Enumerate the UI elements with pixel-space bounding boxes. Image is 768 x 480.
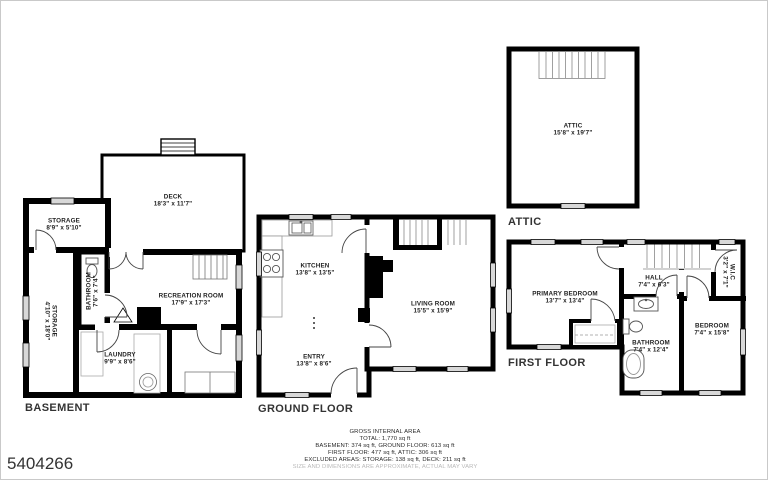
room-label-entry: ENTRY 13'8" x 8'6": [296, 354, 331, 369]
room-label-attic: ATTIC 15'8" x 19'7": [554, 123, 593, 138]
first-attic-areas: FIRST FLOOR: 477 sq ft, ATTIC: 306 sq ft: [235, 450, 535, 457]
basement-stairs: [193, 255, 227, 279]
bathroom-sink-icon: [634, 297, 658, 311]
basement-duct-wall: [137, 307, 161, 329]
washing-machine-icon: [134, 334, 160, 393]
room-label-recreation: RECREATION ROOM 17'9" x 17'3": [159, 293, 224, 308]
room-label-living-room: LIVING ROOM 15'5" x 15'9": [411, 301, 455, 316]
floor-plan-drawing: [1, 1, 768, 480]
ground-floor-plan: [257, 215, 496, 399]
room-label-deck: DECK 18'3" x 11'7": [154, 194, 193, 209]
room-label-kitchen: KITCHEN 13'8" x 13'5": [296, 263, 335, 278]
attic-stairs: [539, 52, 605, 79]
deck-stairs: [161, 139, 195, 155]
room-label-basement-bathroom: BATHROOM 7'6" x 7'4": [86, 272, 101, 310]
room-label-wic: W.I.C 3'2" x 7'1": [721, 256, 736, 288]
excluded-areas: EXCLUDED AREAS: STORAGE: 138 sq ft, DECK…: [235, 457, 535, 464]
floor-label-ground: GROUND FLOOR: [258, 403, 353, 415]
gross-internal-area-title: GROSS INTERNAL AREA: [235, 429, 535, 436]
room-label-primary-bedroom: PRIMARY BEDROOM 13'7" x 13'4": [532, 291, 598, 306]
floor-label-attic: ATTIC: [508, 216, 542, 228]
basement-ground-areas: BASEMENT: 374 sq ft, GROUND FLOOR: 613 s…: [235, 443, 535, 450]
area-summary: GROSS INTERNAL AREA TOTAL: 1,770 sq ft B…: [235, 429, 535, 471]
room-label-laundry: LAUNDRY 9'9" x 8'6": [104, 352, 136, 367]
ground-stairs: [393, 217, 469, 250]
stove-icon: [260, 250, 283, 277]
room-label-hall: HALL 7'4" x 6'3": [638, 275, 670, 290]
floor-plan-sheet: DECK 18'3" x 11'7" STORAGE 8'9" x 5'10" …: [0, 0, 768, 480]
room-label-bedroom: BEDROOM 7'4" x 15'8": [694, 323, 729, 338]
plan-id: 5404266: [7, 454, 73, 474]
floor-label-first: FIRST FLOOR: [508, 357, 586, 369]
attic-window: [561, 204, 585, 209]
room-label-storage-left: STORAGE 4'10" x 18'0": [43, 302, 58, 341]
laundry-cabinet: [81, 332, 103, 376]
first-floor-plan: [507, 240, 747, 396]
kitchen-sink-icon: [289, 221, 313, 235]
total-area: TOTAL: 1,770 sq ft: [235, 436, 535, 443]
basement-closet: [185, 372, 235, 393]
laundry-partition-wall: [167, 327, 172, 395]
primary-closet: [571, 318, 619, 347]
room-label-storage-top: STORAGE 8'9" x 5'10": [46, 218, 81, 233]
room-label-first-bathroom: BATHROOM 7'4" x 12'4": [632, 340, 670, 355]
floor-label-basement: BASEMENT: [25, 402, 90, 414]
disclaimer: SIZE AND DIMENSIONS ARE APPROXIMATE, ACT…: [235, 464, 535, 471]
